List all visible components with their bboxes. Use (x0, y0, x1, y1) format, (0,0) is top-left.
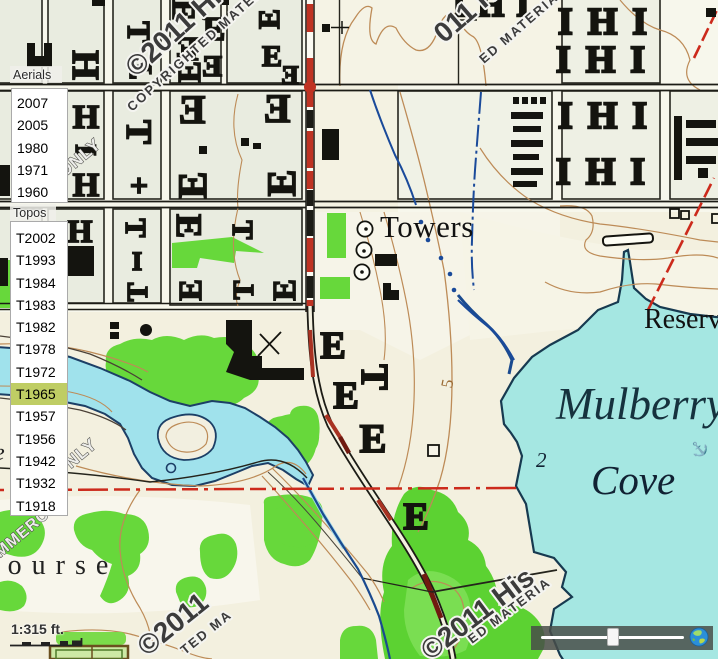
svg-text:Mulberry: Mulberry (555, 379, 718, 429)
svg-text:T: T (119, 120, 159, 144)
svg-text:e: e (0, 440, 5, 466)
svg-text:E: E (320, 325, 345, 367)
svg-text:E: E (259, 170, 304, 197)
svg-text:E: E (169, 214, 209, 238)
svg-text:E: E (403, 496, 428, 538)
svg-text:E: E (170, 172, 215, 199)
svg-text:E: E (264, 86, 291, 131)
svg-text:2: 2 (536, 448, 547, 472)
svg-text:E: E (172, 279, 208, 300)
svg-text:I: I (132, 247, 142, 276)
svg-text:H: H (73, 99, 99, 136)
svg-text:H: H (64, 50, 106, 80)
svg-text:T: T (123, 282, 154, 301)
svg-text:IHI: IHI (558, 1, 662, 43)
svg-text:Towers: Towers (380, 209, 474, 244)
svg-text:H: H (68, 213, 93, 249)
svg-text:T: T (119, 219, 150, 238)
svg-text:E: E (262, 40, 282, 73)
svg-text:IHI: IHI (556, 151, 660, 193)
svg-text:E: E (333, 375, 358, 417)
svg-text:E: E (360, 416, 387, 461)
svg-text:IHI: IHI (558, 95, 662, 137)
svg-text:+: + (130, 167, 148, 203)
svg-text:IHI: IHI (556, 39, 660, 81)
svg-text:E: E (179, 87, 206, 132)
svg-text:T: T (353, 364, 395, 389)
svg-text:T: T (226, 221, 257, 240)
svg-text:T: T (229, 280, 260, 299)
svg-text:H: H (73, 167, 99, 204)
svg-text:Reserv: Reserv (644, 304, 718, 335)
svg-text:Course: Course (0, 550, 118, 581)
svg-text:E: E (266, 279, 302, 300)
svg-text:Cove: Cove (591, 457, 675, 503)
svg-text:E: E (253, 9, 286, 29)
